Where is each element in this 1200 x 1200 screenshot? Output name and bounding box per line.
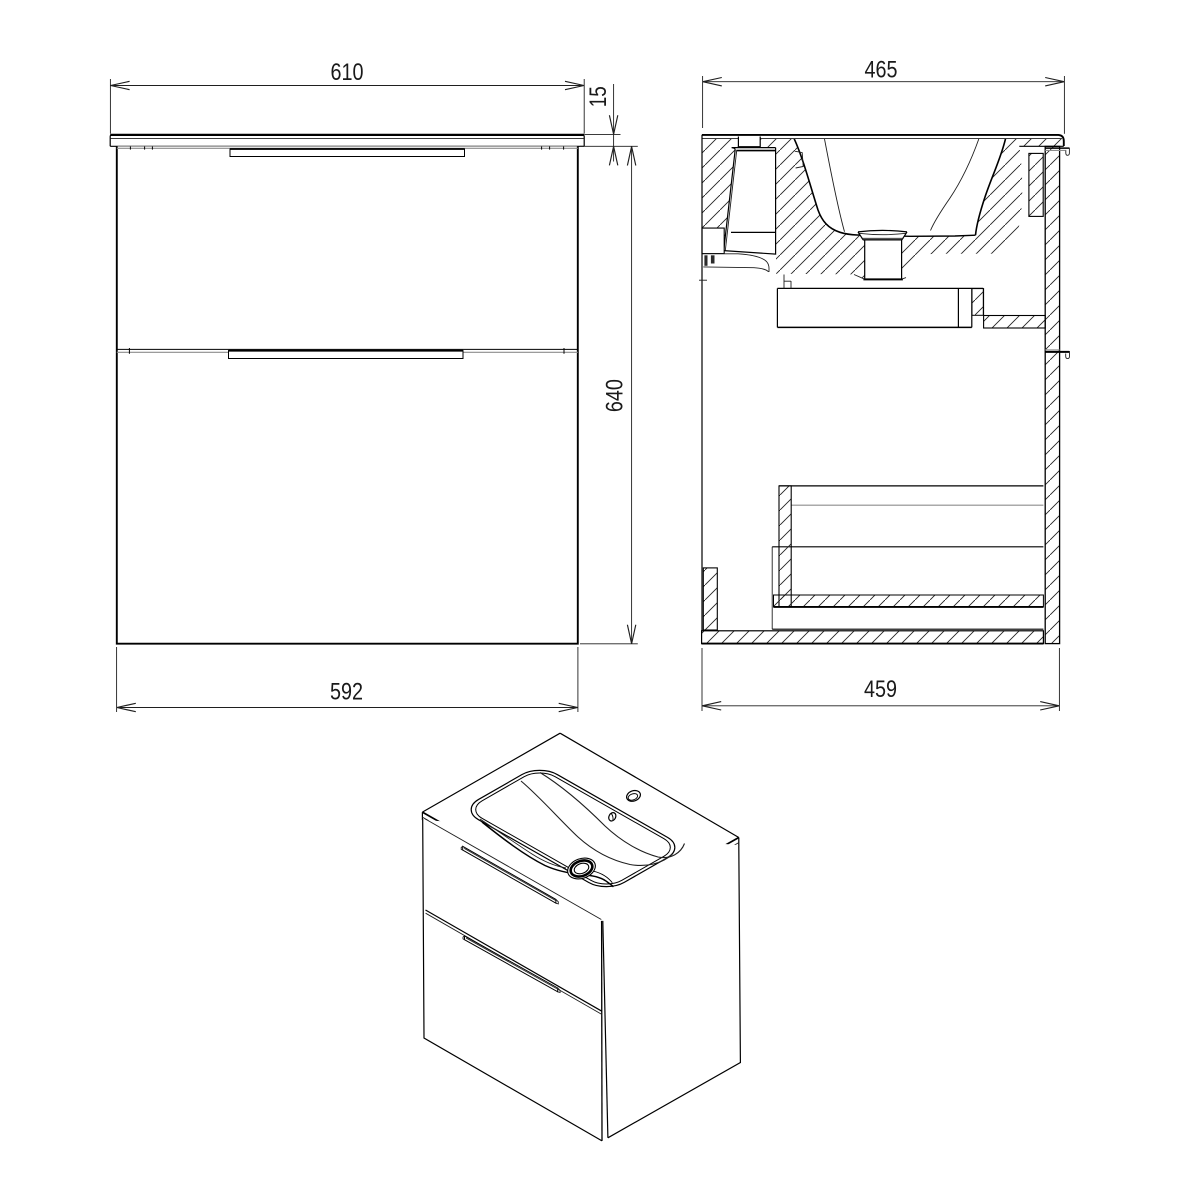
svg-text:15: 15 [585,86,612,107]
svg-text:640: 640 [602,379,629,412]
svg-text:465: 465 [865,57,898,84]
svg-text:610: 610 [331,59,364,86]
svg-text:459: 459 [864,676,897,703]
svg-text:592: 592 [330,679,363,706]
